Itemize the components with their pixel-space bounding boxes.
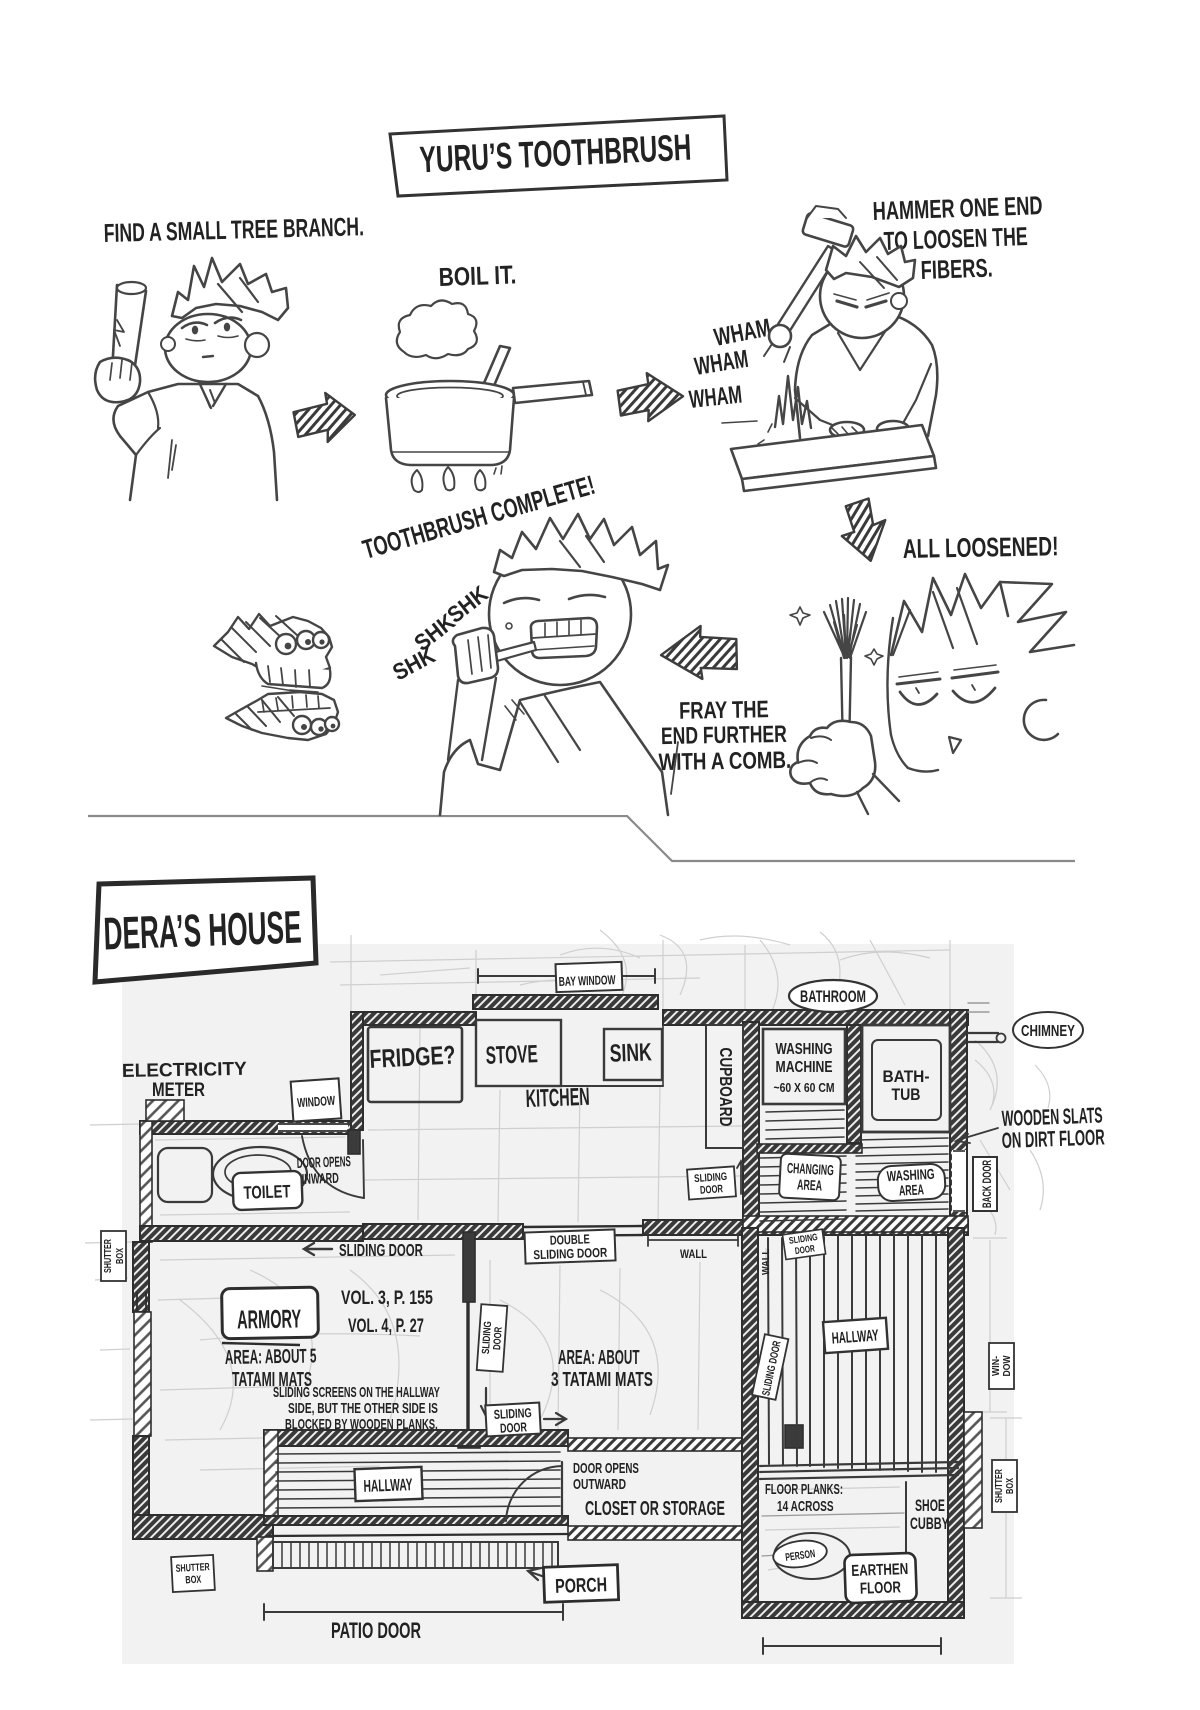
svg-text:DOOR: DOOR: [491, 1326, 504, 1350]
svg-text:SLIDING DOOR: SLIDING DOOR: [533, 1246, 608, 1263]
svg-text:~60 X 60 CM: ~60 X 60 CM: [774, 1081, 835, 1095]
svg-text:TOILET: TOILET: [243, 1182, 291, 1203]
svg-text:14 ACROSS: 14 ACROSS: [777, 1497, 834, 1515]
svg-text:TUB: TUB: [892, 1086, 921, 1104]
svg-text:BOIL IT.: BOIL IT.: [438, 261, 517, 292]
svg-text:INWARD: INWARD: [302, 1170, 340, 1188]
svg-text:FLOOR PLANKS:: FLOOR PLANKS:: [765, 1481, 843, 1498]
svg-text:AREA: ABOUT 5: AREA: ABOUT 5: [225, 1345, 317, 1369]
svg-text:BOX: BOX: [114, 1248, 126, 1264]
svg-text:BOX: BOX: [1004, 1478, 1015, 1494]
svg-text:BAY WINDOW: BAY WINDOW: [558, 973, 616, 989]
svg-text:BATH-: BATH-: [883, 1067, 930, 1086]
svg-text:EARTHEN: EARTHEN: [851, 1559, 909, 1579]
svg-text:CHIMNEY: CHIMNEY: [1021, 1021, 1076, 1039]
svg-text:VOL. 4, P. 27: VOL. 4, P. 27: [348, 1316, 424, 1337]
svg-text:BATHROOM: BATHROOM: [800, 988, 866, 1007]
svg-text:SHOE: SHOE: [915, 1497, 945, 1516]
svg-text:PORCH: PORCH: [555, 1573, 608, 1598]
svg-text:SHUTTER: SHUTTER: [175, 1561, 210, 1574]
svg-text:BACK DOOR: BACK DOOR: [982, 1159, 995, 1208]
svg-text:AREA: AREA: [898, 1181, 924, 1199]
svg-text:STOVE: STOVE: [485, 1040, 538, 1069]
svg-text:WALL: WALL: [760, 1249, 772, 1275]
svg-text:WHAM: WHAM: [688, 381, 744, 414]
svg-text:ALL LOOSENED!: ALL LOOSENED!: [903, 531, 1059, 564]
svg-text:WINDOW: WINDOW: [297, 1094, 336, 1111]
svg-text:SIDE, BUT THE OTHER SIDE IS: SIDE, BUT THE OTHER SIDE IS: [288, 1399, 438, 1417]
svg-text:END FURTHER: END FURTHER: [661, 721, 787, 749]
svg-text:HALLWAY: HALLWAY: [831, 1326, 879, 1347]
svg-text:ARMORY: ARMORY: [237, 1305, 301, 1335]
svg-text:SHUTTER: SHUTTER: [102, 1239, 114, 1273]
svg-text:WIN-: WIN-: [989, 1356, 1001, 1376]
svg-text:FRAY THE: FRAY THE: [679, 696, 769, 725]
svg-text:FRIDGE?: FRIDGE?: [369, 1040, 456, 1074]
svg-text:DOOR: DOOR: [500, 1421, 528, 1436]
svg-text:METER: METER: [152, 1078, 206, 1100]
svg-text:ON DIRT FLOOR: ON DIRT FLOOR: [1001, 1125, 1105, 1153]
svg-text:HAMMER ONE END: HAMMER ONE END: [872, 191, 1043, 226]
svg-text:CLOSET OR STORAGE: CLOSET OR STORAGE: [585, 1497, 725, 1520]
svg-text:AREA: ABOUT: AREA: ABOUT: [558, 1347, 640, 1369]
svg-text:SINK: SINK: [609, 1037, 652, 1067]
svg-text:VOL. 3, P. 155: VOL. 3, P. 155: [341, 1287, 433, 1309]
svg-text:WASHING: WASHING: [776, 1039, 833, 1057]
svg-text:MACHINE: MACHINE: [776, 1059, 833, 1077]
svg-text:FIBERS.: FIBERS.: [920, 253, 993, 284]
svg-text:BLOCKED BY WOODEN PLANKS.: BLOCKED BY WOODEN PLANKS.: [285, 1416, 438, 1433]
svg-text:HALLWAY: HALLWAY: [363, 1474, 413, 1495]
svg-text:DERA’S HOUSE: DERA’S HOUSE: [103, 901, 303, 959]
svg-text:KITCHEN: KITCHEN: [525, 1084, 590, 1113]
svg-text:SLIDING DOOR: SLIDING DOOR: [339, 1240, 423, 1260]
svg-text:WALL: WALL: [680, 1248, 707, 1261]
svg-text:TO LOOSEN THE: TO LOOSEN THE: [883, 222, 1028, 256]
svg-text:CUPBOARD: CUPBOARD: [715, 1048, 734, 1127]
svg-text:OUTWARD: OUTWARD: [573, 1475, 626, 1493]
svg-text:DOW: DOW: [1001, 1355, 1012, 1376]
svg-text:BOX: BOX: [185, 1573, 202, 1585]
svg-text:FLOOR: FLOOR: [860, 1577, 902, 1597]
svg-text:3 TATAMI MATS: 3 TATAMI MATS: [551, 1367, 653, 1390]
svg-text:AREA: AREA: [797, 1176, 823, 1194]
svg-text:PATIO DOOR: PATIO DOOR: [331, 1618, 421, 1643]
svg-text:DOOR OPENS: DOOR OPENS: [297, 1154, 352, 1172]
svg-text:SHUTTER: SHUTTER: [993, 1468, 1004, 1503]
svg-text:DOOR: DOOR: [700, 1183, 724, 1197]
svg-text:WITH A COMB.: WITH A COMB.: [658, 747, 791, 776]
svg-text:CUBBY: CUBBY: [910, 1515, 949, 1534]
